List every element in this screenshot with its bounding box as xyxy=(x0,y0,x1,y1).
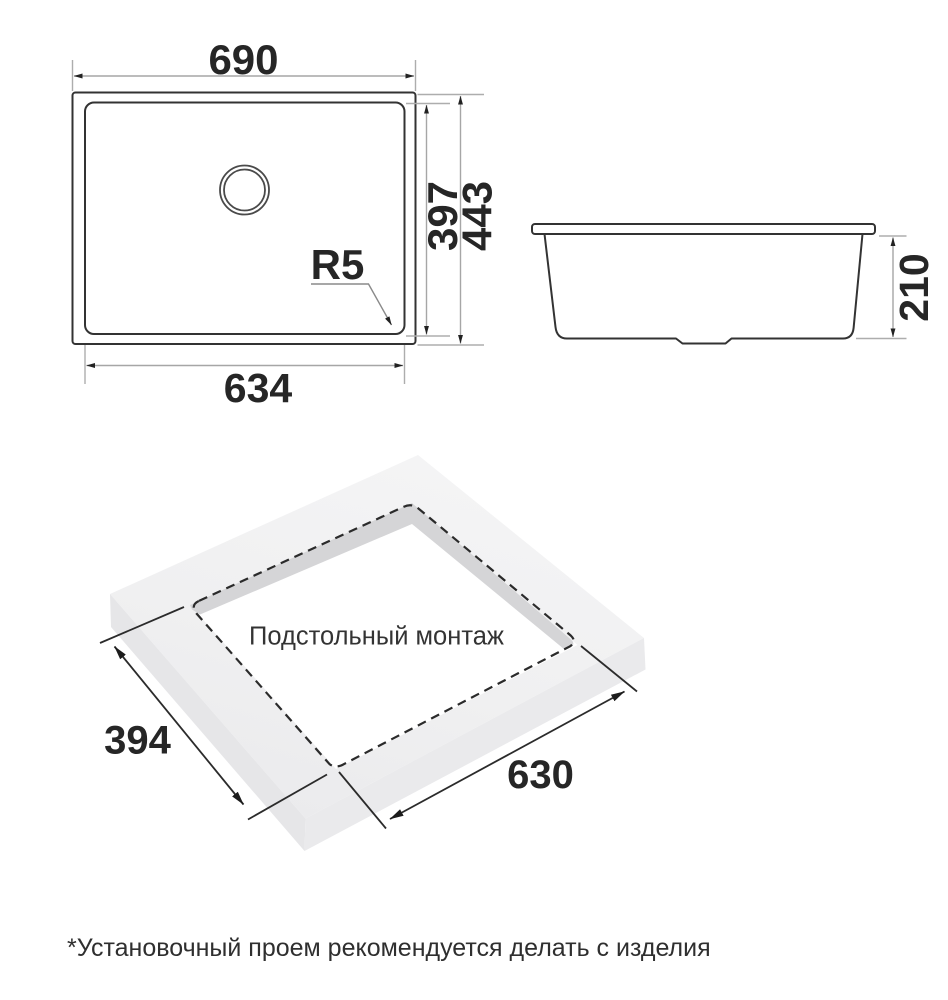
svg-text:443: 443 xyxy=(454,181,501,251)
svg-text:630: 630 xyxy=(507,753,574,797)
svg-text:R5: R5 xyxy=(311,241,365,288)
svg-text:*Установочный проем рекомендуе: *Установочный проем рекомендуется делать… xyxy=(67,934,711,962)
svg-text:634: 634 xyxy=(224,365,293,411)
svg-text:210: 210 xyxy=(891,253,937,321)
svg-text:394: 394 xyxy=(104,719,171,763)
svg-text:690: 690 xyxy=(208,36,278,83)
svg-text:Подстольный монтаж: Подстольный монтаж xyxy=(249,623,504,651)
